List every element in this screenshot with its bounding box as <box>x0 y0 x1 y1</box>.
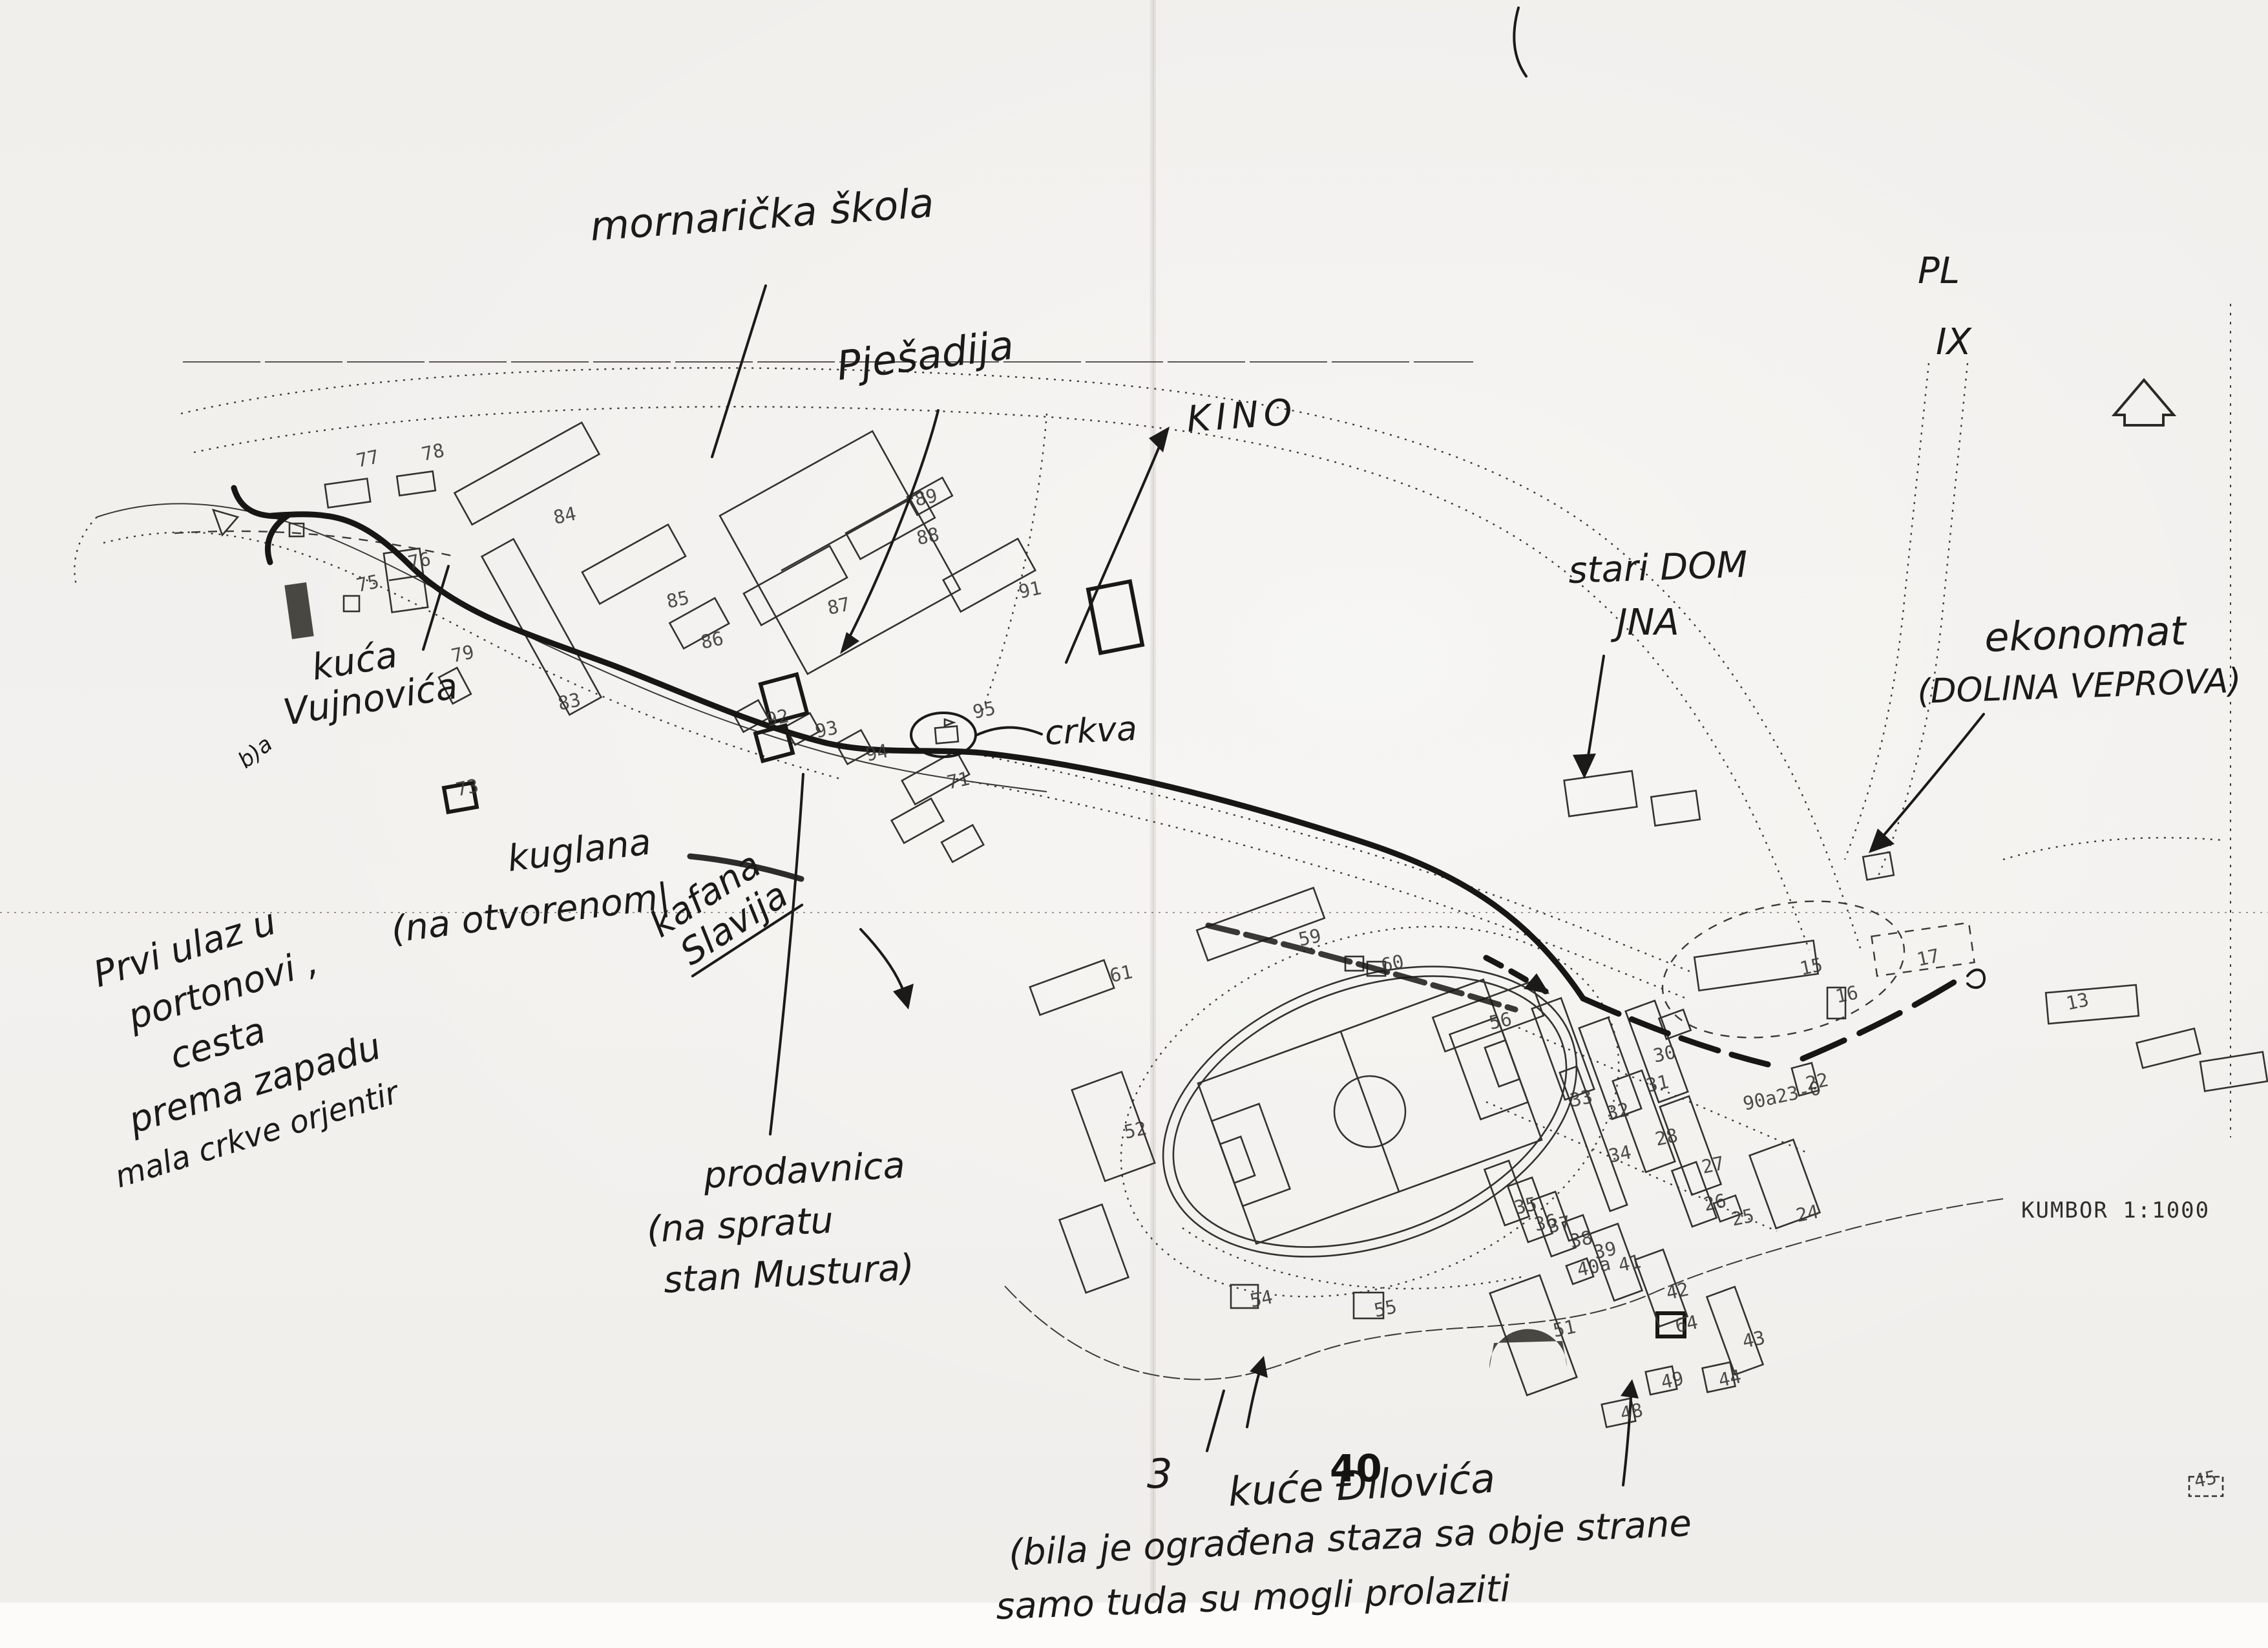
building-number: 92 <box>764 704 790 731</box>
north-arrow-icon <box>2114 380 2174 425</box>
building-number: 87 <box>825 593 852 619</box>
label-dilovici-count: 3 <box>1147 1450 1172 1497</box>
label-plate-1: PL <box>1918 250 1960 292</box>
label-prodavnica-3: stan Mustura) <box>662 1247 915 1302</box>
label-kino: KINO <box>1185 391 1298 441</box>
label-prodavnica-2: (na spratu <box>646 1199 834 1251</box>
building-number: 75 <box>354 570 381 597</box>
building-number: 28 <box>1653 1124 1679 1150</box>
building-number: 78 <box>419 439 446 465</box>
building-number: 76 <box>406 547 432 574</box>
building-number: 52 <box>1122 1117 1148 1143</box>
label-ekonomat-2: (DOLINA VEPROVA) <box>1916 662 2242 712</box>
building-number: 38 <box>1568 1226 1594 1252</box>
building-number: 83 <box>556 688 582 715</box>
label-stari-dom-2: JNA <box>1610 602 1679 644</box>
label-mornaricka-skola: mornarička škola <box>589 179 936 250</box>
building-number: 32 <box>1604 1098 1631 1125</box>
map-scale-label: KUMBOR 1:1000 <box>2021 1198 2210 1223</box>
building-numbers: 7778757679738485868387888991929394957161… <box>354 439 2218 1492</box>
building-number: 77 <box>354 445 381 472</box>
building-number: 79 <box>449 640 476 667</box>
fold-creases <box>0 0 2268 1648</box>
building-number: 17 <box>1915 944 1941 971</box>
tick-dilovici <box>1207 1391 1224 1451</box>
building-number: 30 <box>1651 1041 1677 1067</box>
building-number: 55 <box>1372 1295 1398 1322</box>
building-number: 91 <box>1016 576 1043 603</box>
map-canvas: mornarička škola Pješadija KINO stari DO… <box>0 0 2268 1648</box>
building-number: 25 <box>1729 1204 1756 1231</box>
scanned-map-page: mornarička škola Pješadija KINO stari DO… <box>0 0 2268 1648</box>
building-number: 27 <box>1699 1152 1726 1178</box>
printed-labels: KUMBOR 1:1000 40 <box>1330 1198 2210 1490</box>
building-number: 93 <box>813 716 839 743</box>
building-number: 84 <box>551 502 578 529</box>
label-plate-2: IX <box>1936 321 1973 363</box>
buildings-east <box>1484 771 2267 1496</box>
building-number: 42 <box>1664 1278 1690 1304</box>
building-number: 56 <box>1487 1008 1513 1034</box>
building-number: 89 <box>912 484 939 511</box>
leader-kino <box>1066 434 1164 662</box>
stray-pen-mark <box>1514 8 1526 76</box>
label-kuglana-1: kuglana <box>505 821 653 880</box>
label-stari-dom-1: stari DOM <box>1568 544 1748 592</box>
building-number: 26 <box>1701 1189 1728 1216</box>
building-number: 15 <box>1798 953 1824 980</box>
building-number: 40a <box>1575 1252 1612 1281</box>
label-prodavnica-1: prodavnica <box>702 1145 906 1197</box>
building-number: 71 <box>945 767 971 794</box>
building-number: 85 <box>664 586 691 613</box>
leader-prodavnica <box>770 774 803 1134</box>
building-number: 95 <box>971 697 997 723</box>
building-number: 64 <box>1673 1311 1699 1337</box>
label-crkva: crkva <box>1044 710 1139 753</box>
building-number: 41 <box>1616 1250 1643 1276</box>
roads <box>97 363 2223 1380</box>
label-ekonomat-1: ekonomat <box>1984 607 2189 661</box>
building-number: 49 <box>1659 1367 1685 1393</box>
building-number: 90a23-0 <box>1741 1077 1823 1115</box>
building-number: 43 <box>1740 1326 1767 1353</box>
building-number: 44 <box>1716 1365 1743 1391</box>
building-number: 48 <box>1618 1399 1644 1425</box>
arrow-ekonomat <box>1875 714 1984 845</box>
leader-stari-dom <box>1586 656 1604 770</box>
stadium <box>1123 913 1617 1310</box>
building-number: 13 <box>2064 988 2090 1015</box>
handwritten-annotations: mornarička škola Pješadija KINO stari DO… <box>52 179 2242 1628</box>
building-number: 33 <box>1568 1085 1594 1112</box>
building-number: 45 <box>2192 1466 2218 1492</box>
building-number: 94 <box>863 739 890 766</box>
leader-mornaricka-skola <box>712 286 766 457</box>
building-number: 31 <box>1644 1070 1670 1097</box>
page-number: 40 <box>1330 1446 1382 1490</box>
building-number: 51 <box>1551 1315 1577 1342</box>
label-harbor-mark: b)a <box>233 731 278 774</box>
building-number: 86 <box>698 627 725 653</box>
label-kuglana-2: (na otvorenom| <box>389 876 672 951</box>
leader-crkva <box>976 728 1042 735</box>
label-margin-note: Prvi ulaz u portonovi , cesta prema zapa… <box>52 880 405 1195</box>
building-number: 88 <box>914 523 941 549</box>
building-number: 73 <box>454 774 480 801</box>
label-pjesadija: Pješadija <box>834 321 1016 390</box>
building-number: 59 <box>1296 924 1323 951</box>
label-bottom-note-1: (bila je ograđena staza sa obje strane <box>1008 1503 1692 1574</box>
church-building <box>935 726 958 744</box>
naval-school-block <box>720 431 960 674</box>
harbor-hand-stroke <box>234 488 288 562</box>
hand-shaded-band <box>1208 925 1515 1009</box>
building-number: 16 <box>1833 981 1860 1008</box>
building-number: 61 <box>1108 960 1134 987</box>
building-number: 54 <box>1248 1285 1274 1312</box>
building-number: 24 <box>1794 1200 1820 1227</box>
harbor-area <box>74 488 304 585</box>
stari-dom-building <box>1564 771 1637 816</box>
building-number: 34 <box>1606 1141 1633 1167</box>
building-number: 60 <box>1379 950 1405 977</box>
